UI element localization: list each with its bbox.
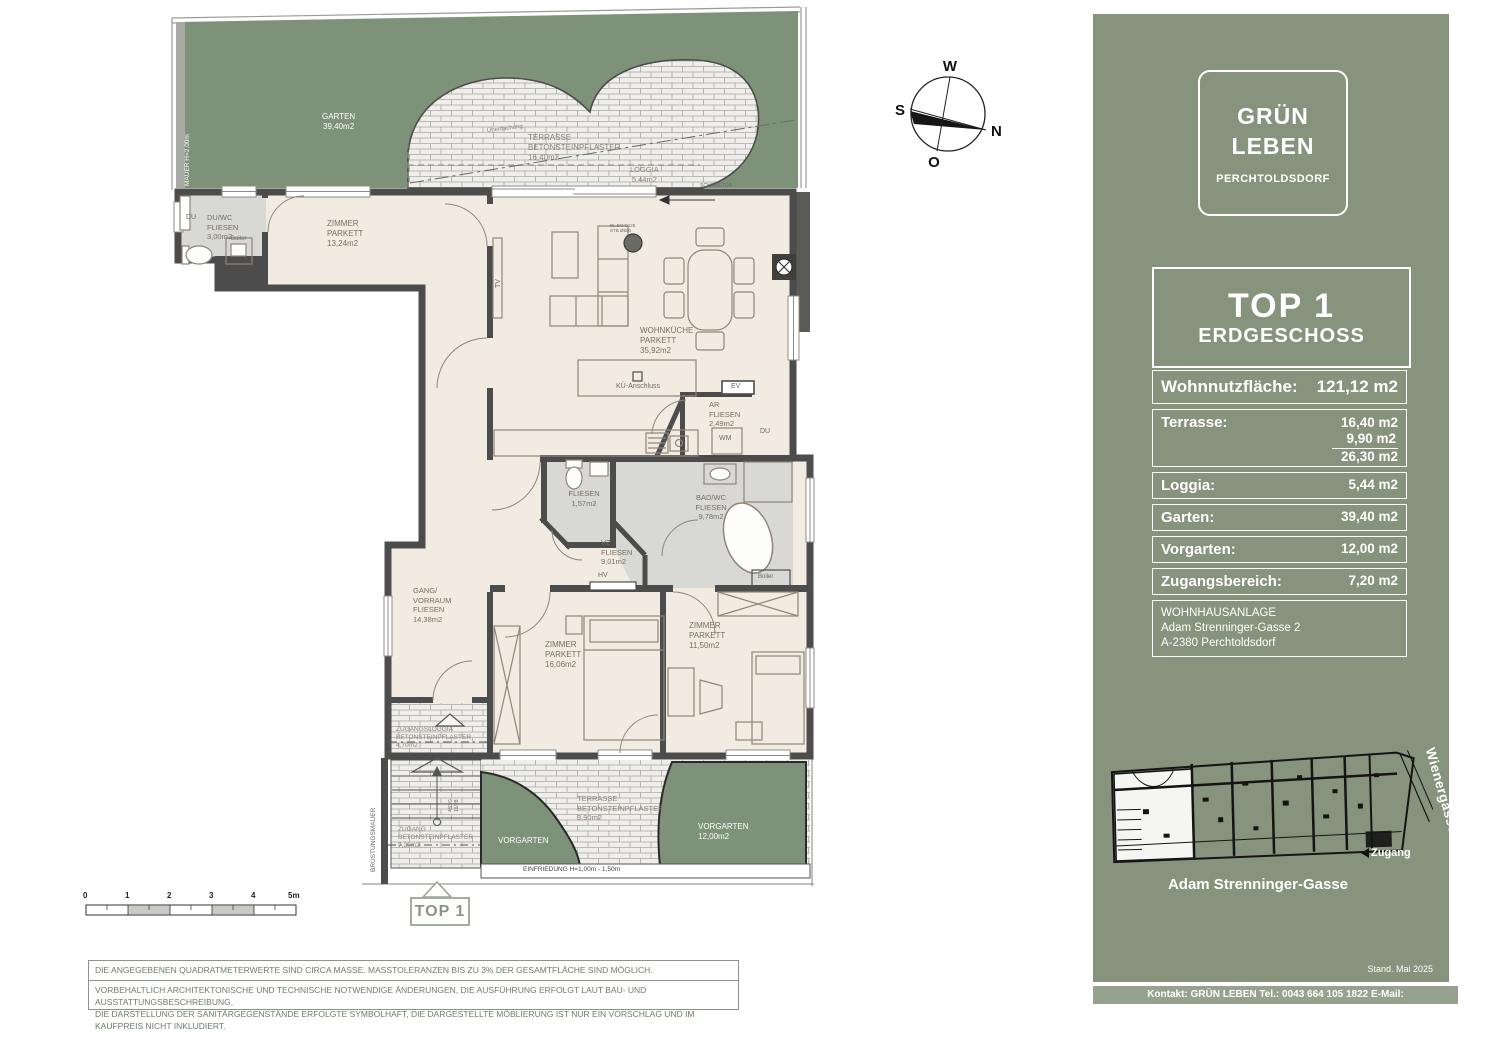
highlighted-unit: [1114, 769, 1194, 861]
brand-line2: LEBEN: [1232, 131, 1315, 161]
row-vorgarten: Vorgarten: 12,00 m2: [1152, 536, 1407, 563]
row-loggia: Loggia: 5,44 m2: [1152, 472, 1407, 499]
terrasse-values: 16,40 m2 9,90 m2 26,30 m2: [1332, 415, 1398, 465]
brand-logo: GRÜN LEBEN PERCHTOLDSDORF: [1198, 70, 1348, 216]
scale-tick-1: 1: [125, 891, 129, 900]
zugang-arrow-icon: [1356, 848, 1369, 858]
scale-tick-3: 3: [209, 891, 213, 900]
label-ev: EV: [731, 383, 740, 392]
label-terrasse-top: TERRASSE BETONSTEINPFLASTER 16,40m2: [528, 133, 620, 164]
label-kue-anschluss: KÜ-Anschluss: [588, 383, 688, 392]
label-gang: GANG/ VORRAUM FLIESEN 14,38m2: [413, 586, 451, 624]
row-value: 121,12 m2: [1317, 377, 1398, 397]
scale-tick-0: 0: [83, 891, 87, 900]
disclaimer-line1: DIE ANGEGEBENEN QUADRATMETERWERTE SIND C…: [88, 960, 739, 981]
label-du-bad: DU: [760, 428, 770, 437]
siteplan-zugang-label: Zugang: [1356, 847, 1411, 859]
row-garten: Garten: 39,40 m2: [1152, 504, 1407, 531]
label-stiege: 4STG. 16/28: [448, 798, 460, 812]
terrasse-v2: 9,90 m2: [1332, 431, 1398, 449]
compass-o: O: [928, 154, 940, 169]
zugang-text: Zugang: [1371, 847, 1411, 859]
unit-subtitle: ERDGESCHOSS: [1198, 325, 1365, 348]
sidebar-panel: GRÜN LEBEN PERCHTOLDSDORF TOP 1 ERDGESCH…: [1093, 14, 1449, 982]
label-zugangsloggia: ZUGANGSLOGGIA BETONSTEINPFLASTER 4,70m2: [396, 726, 471, 749]
label-wohnkueche: WOHNKÜCHE PARKETT 35,92m2: [640, 326, 693, 357]
project-address: WOHNHAUSANLAGE Adam Strenninger-Gasse 2 …: [1152, 600, 1407, 657]
row-terrasse: Terrasse: 16,40 m2 9,90 m2 26,30 m2: [1152, 409, 1407, 467]
brand-line3: PERCHTOLDSDORF: [1216, 173, 1330, 185]
contact-bar: Kontakt: GRÜN LEBEN Tel.: 0043 664 105 1…: [1093, 986, 1458, 1004]
unit-title: TOP 1: [1228, 287, 1335, 325]
label-einfriedung: EINFRIEDUNG H=1,00m - 1,50m: [523, 866, 620, 874]
compass-s: S: [895, 102, 905, 119]
row-value: 5,44 m2: [1348, 477, 1398, 492]
label-du-top: DU: [186, 214, 196, 223]
unit-title-box: TOP 1 ERDGESCHOSS: [1152, 267, 1411, 368]
label-zimmer1: ZIMMER PARKETT 13,24m2: [327, 219, 363, 250]
row-wohnnutzflaeche: Wohnnutzfläche: 121,12 m2: [1152, 370, 1407, 404]
row-value: 12,00 m2: [1341, 541, 1398, 556]
area-table: Wohnnutzfläche: 121,12 m2 Terrasse: 16,4…: [1152, 370, 1407, 657]
compass-n: N: [991, 123, 1002, 140]
label-terrasse-unten: TERRASSE BETONSTEINPFLASTER 9,90m2: [577, 794, 664, 823]
row-value: 39,40 m2: [1341, 509, 1398, 524]
label-ar: AR FLIESEN 2,49m2: [709, 400, 740, 429]
label-hv: HV: [598, 572, 608, 581]
label-schiebetuer: SCHIEBETÜR: [700, 183, 732, 189]
compass-needle: [910, 111, 986, 130]
label-boiler-bad: Boiler: [758, 574, 773, 582]
disclaimer-line2: VORBEHALTLICH ARCHITEKTONISCHE UND TECHN…: [88, 980, 739, 1010]
label-zimmer3: ZIMMER PARKETT 11,50m2: [689, 621, 725, 652]
label-loggia: LOGGIA 5,44m2: [630, 165, 659, 184]
label-wm: WM: [719, 435, 731, 444]
label-zugang: ZUGANG BETONSTEINPFLASTER 7,20m2: [398, 826, 473, 849]
label-bruestungsmauer: BRÜSTUNGSMAUER: [370, 808, 378, 872]
label-vorgarten-links: VORGARTEN: [498, 836, 549, 846]
top1-marker: TOP 1: [410, 897, 470, 926]
scale-tick-4: 4: [251, 891, 255, 900]
street-label-adam-strenninger-gasse: Adam Strenninger-Gasse: [1093, 876, 1423, 893]
label-vorgarten-rechts: VORGARTEN 12,00m2: [698, 822, 749, 842]
label-wc-fliesen: FLIESEN 1,57m2: [562, 489, 606, 508]
brand-line1: GRÜN: [1237, 101, 1309, 131]
scale-tick-5: 5m: [288, 891, 300, 900]
label-badwc: BAD/WC FLIESEN 9,78m2: [688, 493, 734, 522]
label-zimmer2: ZIMMER PARKETT 16,06m2: [545, 640, 581, 671]
label-mauer: MAUER H=2,00m: [184, 134, 192, 186]
terrasse-sum: 26,30 m2: [1332, 449, 1398, 465]
compass-rose: W N O S: [893, 57, 1005, 169]
label-boiler-top: Boiler: [231, 236, 246, 244]
scale-tick-2: 2: [167, 891, 171, 900]
label-tv: TV: [495, 279, 504, 288]
compass-w: W: [943, 58, 958, 75]
row-value: 7,20 m2: [1348, 573, 1398, 588]
label-garten: GARTEN 39,40m2: [322, 112, 355, 132]
row-zugangsbereich: Zugangsbereich: 7,20 m2: [1152, 568, 1407, 595]
label-column-note: BL.Bst.D125 STB Ø500: [610, 223, 635, 234]
floor-plan-page: W N O S GARTEN 39,40m2 MAUER H=2,00m TER…: [0, 0, 1485, 1039]
terrasse-v1: 16,40 m2: [1332, 415, 1398, 431]
garden-area: [176, 11, 798, 188]
scale-bar: [86, 905, 296, 915]
label-vz: VZ FLIESEN 9,01m2: [601, 538, 632, 567]
plan-date: Stand. Mai 2025: [1367, 964, 1433, 974]
